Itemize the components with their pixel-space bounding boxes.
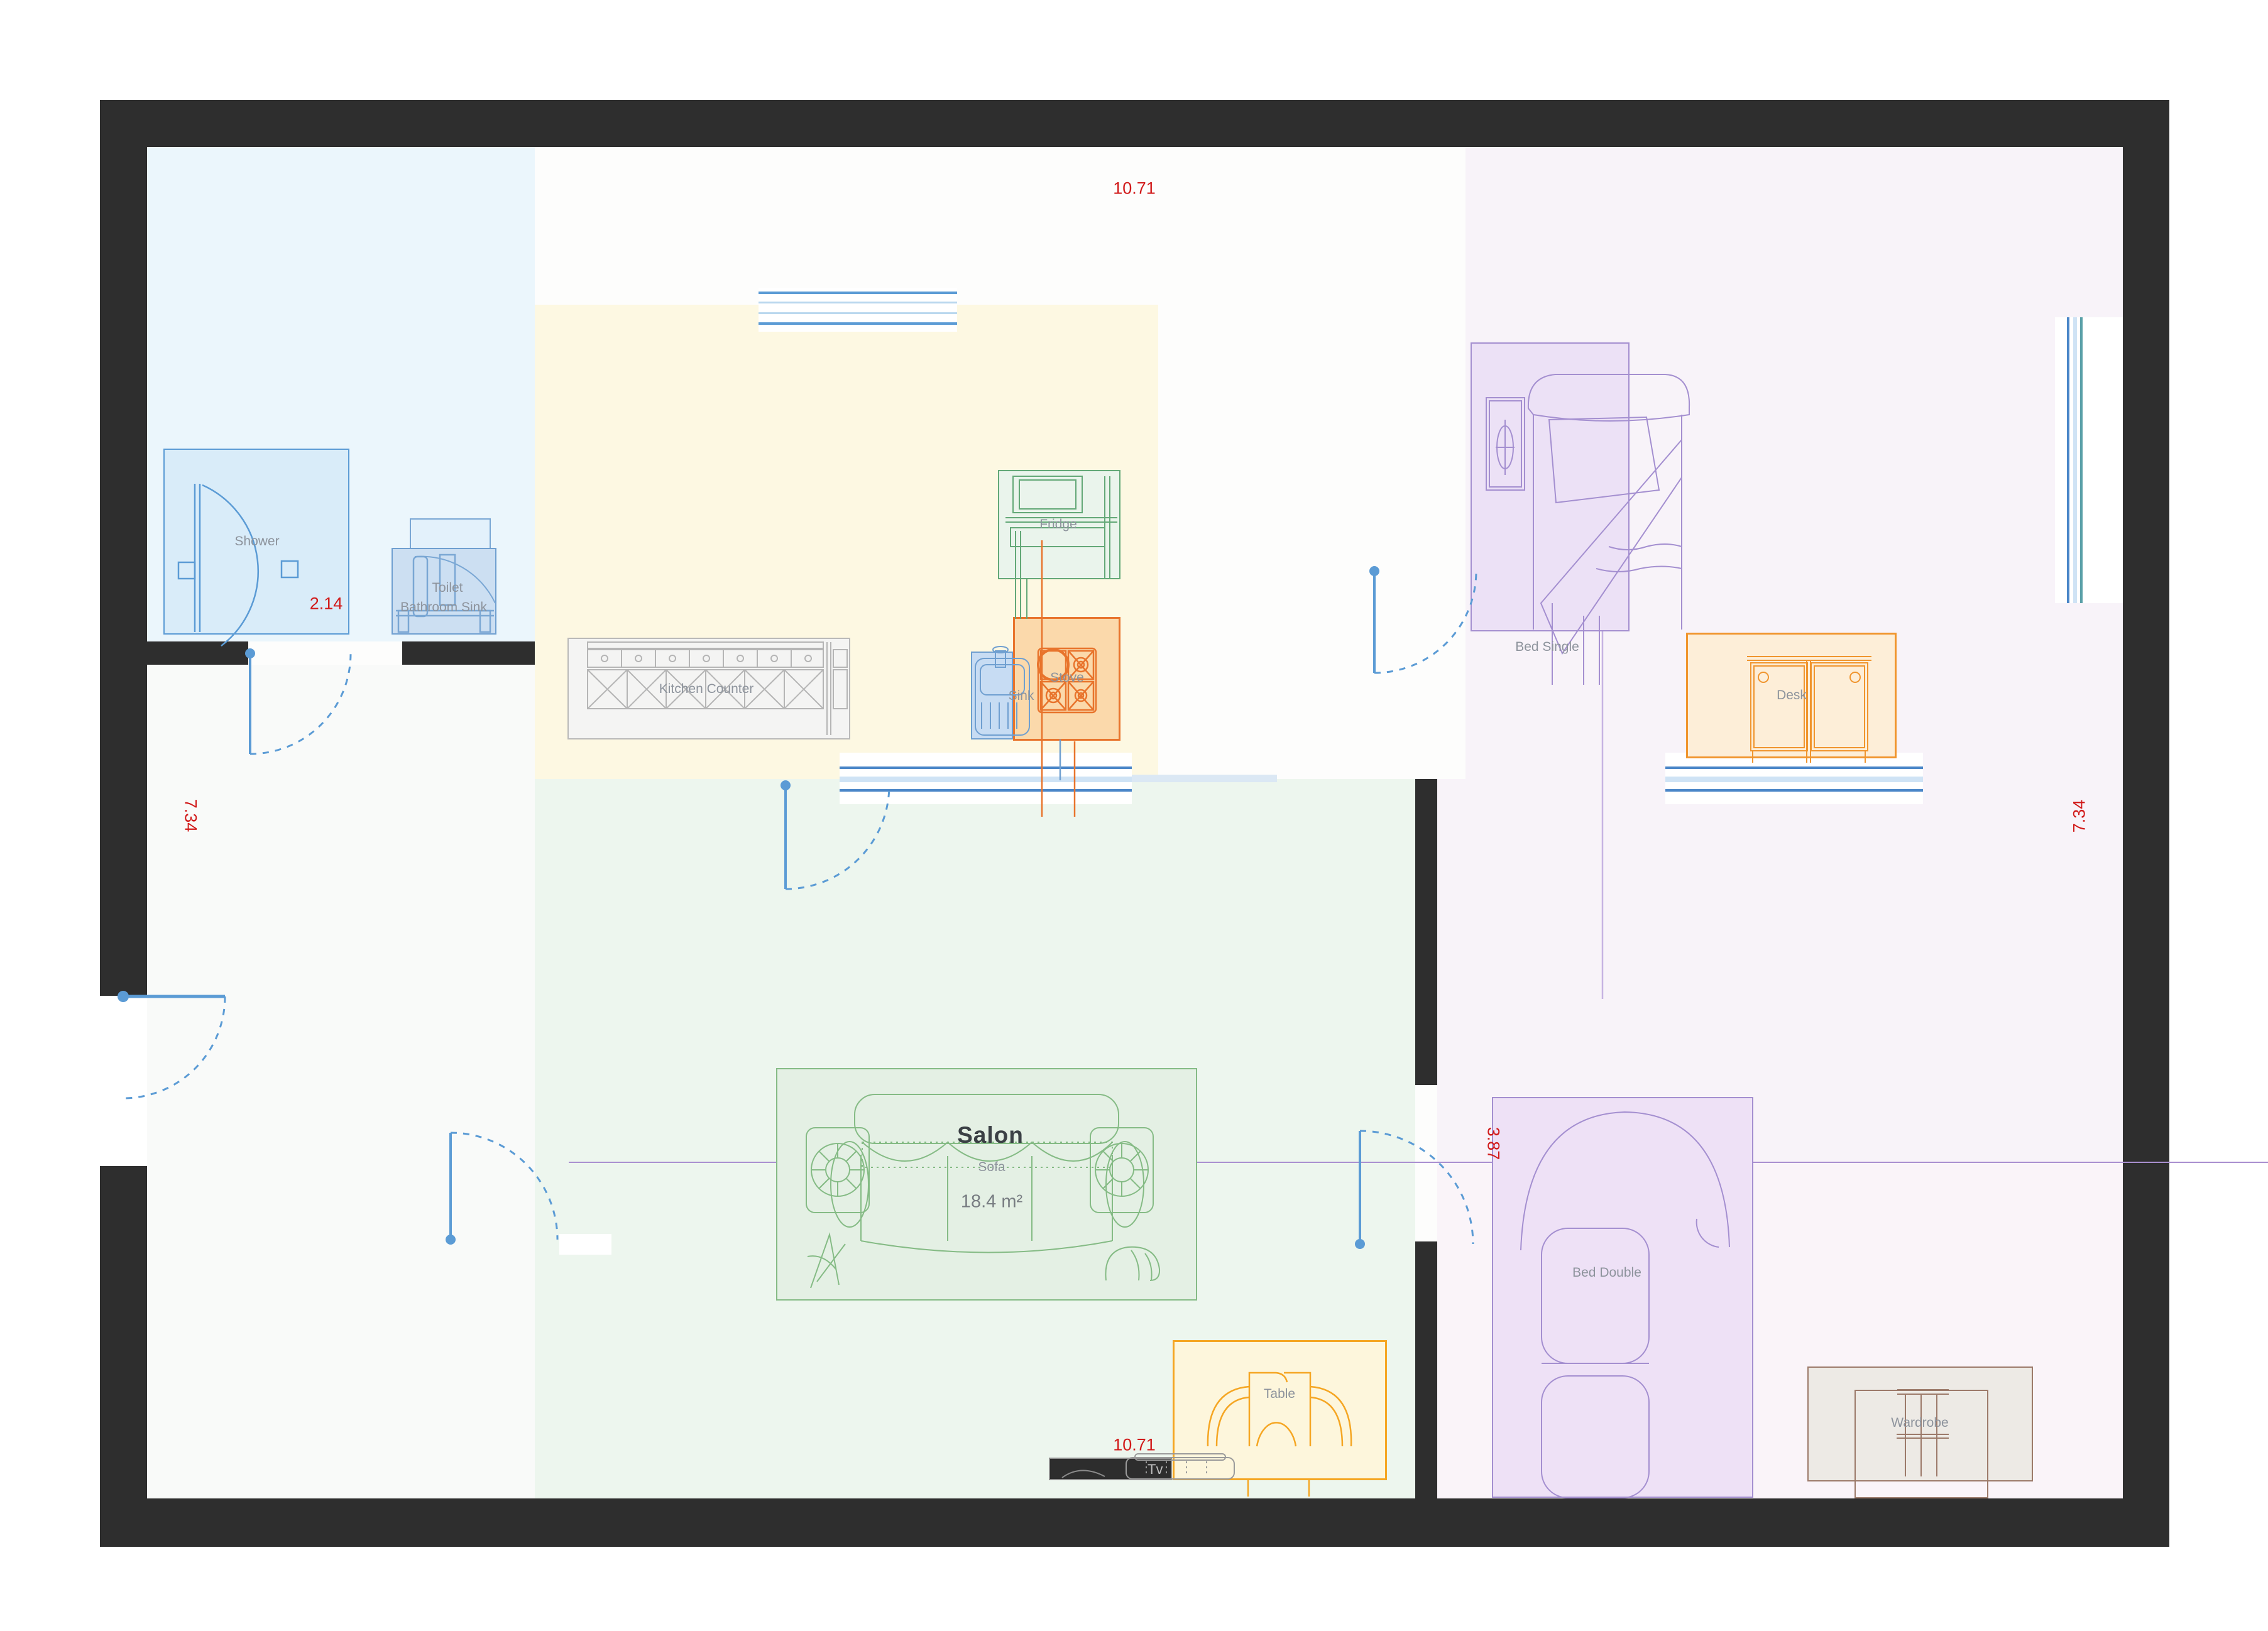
- window-line: [759, 302, 957, 303]
- wall-bathroom-left: [147, 641, 248, 665]
- wall-bathroom-right: [402, 641, 535, 665]
- window-kitchen-top: [759, 288, 957, 332]
- label-shower: Shower: [234, 534, 279, 549]
- window-line: [840, 766, 1132, 769]
- dimension-top-width: 10.71: [1113, 179, 1156, 199]
- wall-salon-lower: [1415, 1241, 1437, 1498]
- dimension-right-height: 7.34: [2070, 800, 2090, 833]
- dimension-left-height: 7.34: [181, 799, 200, 832]
- label-bed-double: Bed Double: [1572, 1265, 1641, 1280]
- furniture-bed-single[interactable]: [1471, 342, 1630, 631]
- window-line: [2067, 317, 2069, 603]
- window-line: [840, 789, 1132, 792]
- room-pokoj-dzienny-strip: [1437, 779, 1465, 1162]
- dimension-bedroom-width: 3.87: [1484, 1127, 1503, 1160]
- label-fridge: Fridge: [1039, 517, 1077, 532]
- label-desk: Desk: [1777, 688, 1807, 703]
- furniture-sink[interactable]: [971, 652, 1013, 739]
- room-przedpokoj[interactable]: [147, 665, 535, 1498]
- room-area-salon: 18.4 m²: [961, 1192, 1022, 1213]
- window-sill-extension: [1132, 775, 1277, 782]
- window-line: [2080, 317, 2083, 603]
- window-line: [1665, 789, 1923, 792]
- label-wardrobe: Wardrobe: [1891, 1416, 1948, 1431]
- floor-plan-canvas: Tv: [0, 0, 2268, 1631]
- window-line: [1665, 777, 1923, 782]
- furniture-table[interactable]: [1173, 1340, 1387, 1480]
- label-toilet: Toilet: [432, 581, 463, 596]
- window-kitchen-bottom: [840, 753, 1132, 804]
- window-line: [759, 312, 957, 314]
- window-line: [2073, 317, 2077, 603]
- wall-salon-upper: [1415, 779, 1437, 1085]
- label-kitchen-counter: Kitchen Counter: [659, 682, 754, 697]
- dimension-bottom-width: 10.71: [1113, 1436, 1156, 1455]
- dimension-bathroom-width: 2.14: [310, 594, 343, 614]
- window-line: [759, 322, 957, 325]
- label-sofa: Sofa: [978, 1160, 1005, 1175]
- label-bathroom-sink: Bathroom Sink: [400, 600, 487, 615]
- furniture-toilet-tank: [410, 518, 491, 550]
- label-table: Table: [1264, 1387, 1295, 1402]
- label-sink: Sink: [1009, 689, 1034, 704]
- front-door-opening: [100, 996, 147, 1166]
- window-line: [1665, 766, 1923, 769]
- window-line: [759, 292, 957, 294]
- hall-door-opening: [559, 1234, 611, 1255]
- furniture-tv[interactable]: [1049, 1458, 1172, 1480]
- label-bed-single: Bed Single: [1515, 640, 1579, 655]
- furniture-bed-double[interactable]: [1492, 1097, 1753, 1498]
- room-label-salon: Salon: [957, 1122, 1024, 1148]
- window-line: [840, 777, 1132, 782]
- window-right: [2055, 317, 2123, 603]
- label-stove: Stove: [1050, 670, 1084, 685]
- furniture-sofa[interactable]: [776, 1068, 1197, 1301]
- window-pokoj-bottom: [1665, 753, 1923, 804]
